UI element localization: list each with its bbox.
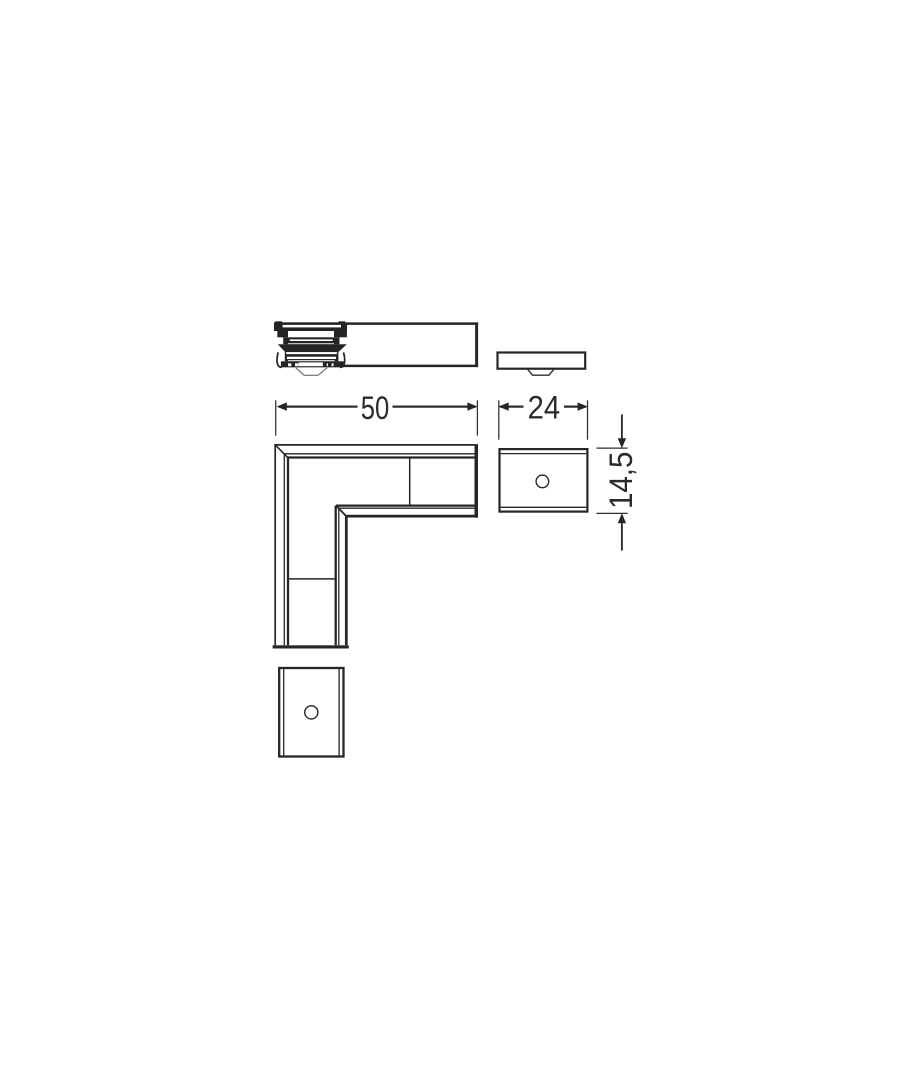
svg-text:50: 50 <box>361 390 390 426</box>
svg-text:24: 24 <box>528 390 561 426</box>
svg-text:14,5: 14,5 <box>603 452 639 510</box>
